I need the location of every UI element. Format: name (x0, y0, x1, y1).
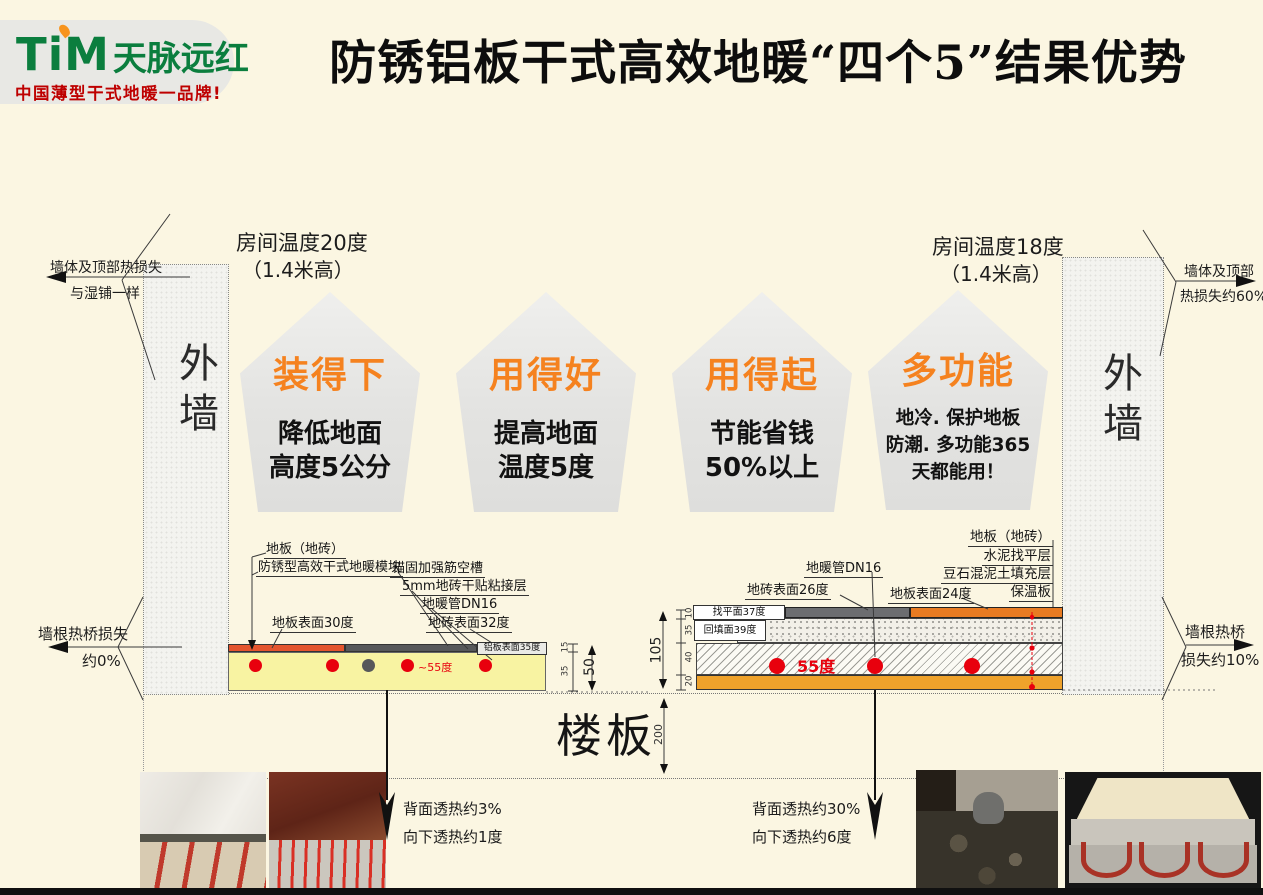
callout-midleft-line1: 墙根热桥损失 (38, 623, 128, 644)
wet-label-tile-surface: 地砖表面26度 (745, 579, 831, 600)
callout-midleft-line2: 约0% (82, 650, 121, 671)
pentagon-2-title: 用得好 (456, 346, 636, 398)
wet-fill-surface-label: 回填面39度 (694, 620, 766, 641)
callout-topleft-line1: 墙体及顶部热损失 (50, 257, 162, 277)
callout-midright-line2: 损失约10% (1181, 649, 1259, 670)
wet-pipe-dot-2 (867, 658, 883, 674)
left-wall-label: 外墙 (166, 342, 224, 442)
logo: TiM天脉远红 (16, 28, 249, 81)
dry-label-floor-surface: 地板表面30度 (270, 612, 356, 633)
pentagon-4-line2: 防潮. 多功能365 (868, 433, 1048, 460)
photo-tile-pipes (140, 842, 266, 891)
floor-slab-label: 楼板 (556, 700, 656, 766)
wet-label-insulation: 保温板 (1009, 580, 1054, 602)
photo-screed-worker (973, 792, 1004, 824)
wet-back-heat-note: 背面透热约30% (752, 798, 860, 819)
room-right-height: （1.4米高） (940, 258, 1052, 287)
pentagon-1-title: 装得下 (240, 346, 420, 398)
dry-back-heat-note: 背面透热约3% (403, 798, 502, 819)
dry-dim-total: 50 (582, 658, 598, 676)
wet-dim-35: 35 (684, 625, 694, 636)
pentagon-3-line2: 50%以上 (672, 452, 852, 486)
pentagon-3-title: 用得起 (672, 346, 852, 398)
infographic-canvas: TiM天脉远红 中国薄型干式地暖一品牌! 防锈铝板干式高效地暖“四个5”结果优势… (0, 0, 1263, 895)
dry-aluminum-layer-red (228, 644, 345, 652)
logo-brand-cn-text: 天脉远红 (113, 39, 249, 79)
wet-label-pipe: 地暖管DN16 (804, 557, 883, 578)
dry-down-heat-note: 向下透热约1度 (403, 826, 503, 847)
benefit-pentagon-1: 装得下 降低地面 高度5公分 (240, 292, 420, 512)
dry-alu-surface-label: 铝板表面35度 (477, 642, 547, 655)
callout-topright-line2: 热损失约60% (1180, 286, 1263, 306)
dry-pipe-dot-4 (479, 659, 492, 672)
dry-groove-dot (362, 659, 375, 672)
left-outer-wall (143, 264, 229, 695)
logo-tagline: 中国薄型干式地暖一品牌! (15, 80, 222, 104)
dry-pipe-dot-2 (326, 659, 339, 672)
wet-pipe-dot-3 (964, 658, 980, 674)
pentagon-2-line2: 温度5度 (456, 452, 636, 486)
wet-insulation-layer (696, 675, 1063, 690)
photo-wet-section-model (1065, 772, 1261, 893)
photo-aluminum-module (269, 772, 386, 891)
wet-fill-layer (737, 618, 1063, 643)
dry-label-module: 防锈型高效干式地暖模块 (256, 556, 403, 577)
dry-dim-35: 35 (560, 666, 570, 677)
pentagon-4-line1: 地冷. 保护地板 (868, 406, 1048, 433)
pentagon-1-line1: 降低地面 (240, 418, 420, 452)
callout-topleft-line2: 与湿铺一样 (70, 283, 140, 303)
photo-tile-section (140, 772, 266, 891)
right-wall-label: 外墙 (1090, 352, 1148, 452)
dry-label-pipe: 地暖管DN16 (420, 593, 499, 614)
wet-dim-40: 40 (684, 652, 694, 663)
callout-topright-line1: 墙体及顶部 (1184, 261, 1254, 281)
wet-down-heat-note: 向下透热约6度 (752, 826, 852, 847)
wet-label-floor-surface: 地板表面24度 (888, 583, 974, 604)
room-left-temp: 房间温度20度 (236, 227, 368, 257)
dry-pipe-dot-1 (249, 659, 262, 672)
pentagon-4-title: 多功能 (868, 342, 1048, 394)
photo-screed-wall (956, 770, 1058, 811)
photo-wet-screed (916, 770, 1058, 892)
room-left-height: （1.4米高） (242, 254, 354, 283)
photo-module-floor (269, 840, 386, 891)
dry-pipe-dot-3 (401, 659, 414, 672)
wet-water-temp: 55度 (797, 653, 835, 677)
wet-leveling-layer-gray (785, 607, 910, 618)
photo-tile-marble (140, 772, 266, 834)
photo-model-top-slab (1077, 778, 1249, 819)
dry-water-temp: ~55度 (418, 659, 452, 675)
wet-dim-10: 10 (684, 608, 694, 619)
photo-model-screed-band (1071, 819, 1255, 844)
pentagon-3-line1: 节能省钱 (672, 418, 852, 452)
dry-module-layer (228, 652, 546, 691)
wet-pipe-dot-1 (769, 658, 785, 674)
benefit-pentagon-3: 用得起 节能省钱 50%以上 (672, 292, 852, 512)
benefit-pentagon-4: 多功能 地冷. 保护地板 防潮. 多功能365 天都能用！ (868, 290, 1048, 510)
benefit-pentagon-2: 用得好 提高地面 温度5度 (456, 292, 636, 512)
wet-dim-total: 105 (648, 637, 664, 664)
dry-label-tile-surface: 地砖表面32度 (426, 612, 512, 633)
slab-dim-200: 200 (652, 724, 665, 745)
callout-midright-line1: 墙根热桥 (1185, 621, 1245, 642)
wet-dim-20: 20 (684, 676, 694, 687)
wet-level-surface-label: 找平面37度 (693, 605, 785, 620)
wet-tile-layer-orange (910, 607, 1063, 618)
pentagon-4-line3: 天都能用！ (868, 460, 1048, 487)
photo-tile-edge (140, 834, 266, 842)
room-right-temp: 房间温度18度 (932, 231, 1064, 261)
pentagon-2-line1: 提高地面 (456, 418, 636, 452)
bottom-border-bar (0, 888, 1263, 895)
photo-model-pipe-arc-1 (1081, 842, 1132, 878)
dry-aluminum-layer-gray (345, 644, 477, 652)
pentagon-1-line2: 高度5公分 (240, 452, 420, 486)
page-title: 防锈铝板干式高效地暖“四个5”结果优势 (258, 24, 1258, 93)
right-outer-wall (1062, 257, 1164, 695)
photo-module-wall (269, 772, 386, 840)
dry-dim-15: 15 (560, 642, 570, 653)
